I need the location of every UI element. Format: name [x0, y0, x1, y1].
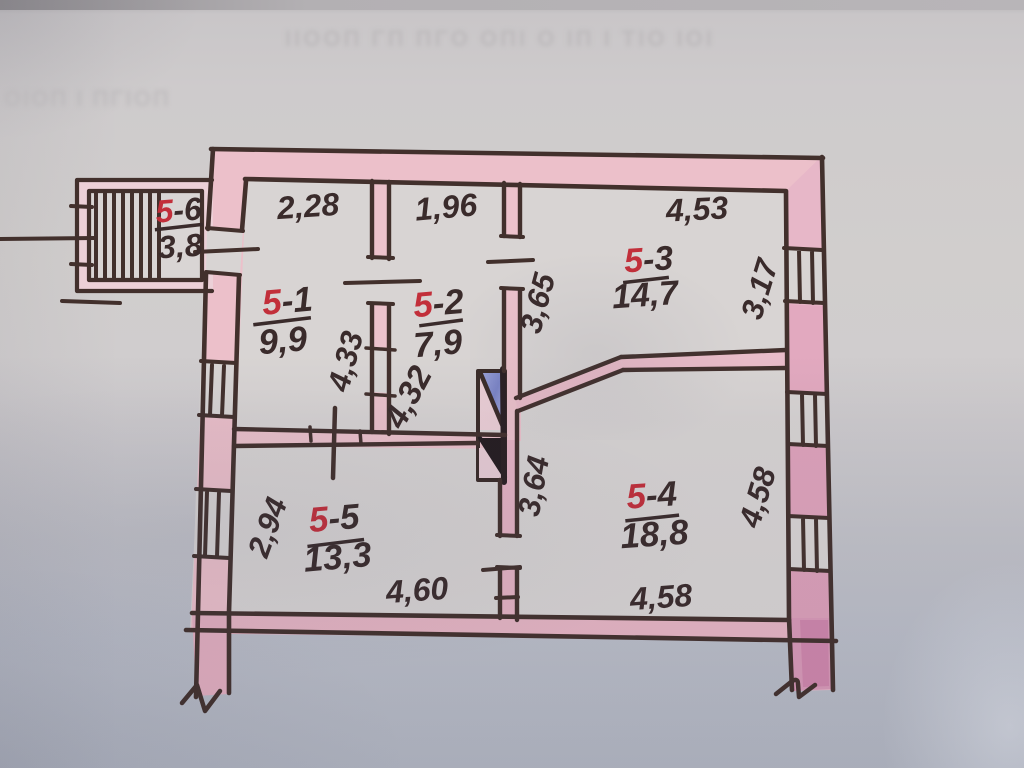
svg-text:4,53: 4,53 — [664, 189, 729, 228]
svg-text:5-5: 5-5 — [307, 497, 361, 540]
svg-text:7,9: 7,9 — [412, 322, 464, 365]
svg-text:4,60: 4,60 — [384, 570, 450, 610]
svg-text:9,9: 9,9 — [257, 319, 309, 362]
svg-text:5-1: 5-1 — [260, 280, 314, 323]
svg-text:4,58: 4,58 — [628, 577, 694, 617]
svg-text:5-4: 5-4 — [625, 474, 678, 516]
svg-text:3,8: 3,8 — [157, 227, 204, 266]
svg-text:14,7: 14,7 — [611, 274, 682, 317]
svg-text:1,96: 1,96 — [413, 186, 478, 227]
svg-text:2,28: 2,28 — [275, 186, 341, 226]
svg-text:18,8: 18,8 — [619, 513, 690, 557]
svg-text:5-2: 5-2 — [411, 282, 465, 325]
svg-text:13,3: 13,3 — [302, 535, 374, 580]
